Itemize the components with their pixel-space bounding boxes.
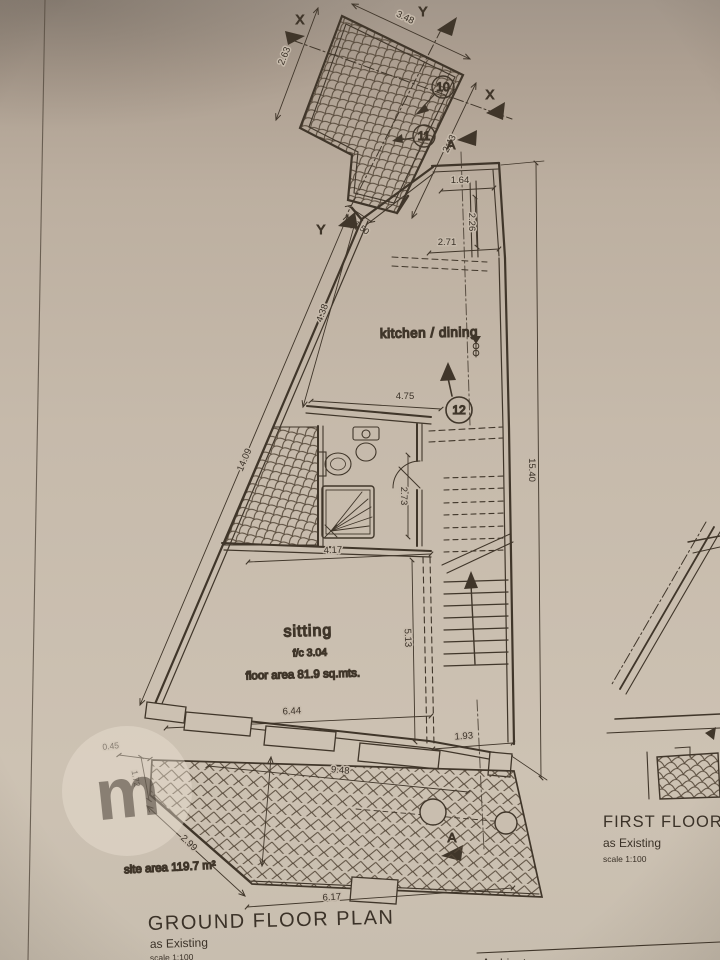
room-label-kitchen: kitchen / dining (380, 324, 478, 341)
dim-front-width: 9.48 (331, 764, 350, 777)
dim-right-total: 15.40 (526, 458, 537, 482)
first-floor-title: FIRST FLOOR (603, 813, 720, 831)
watermark: m (62, 726, 192, 856)
plan-canvas: 3.48 2.63 2.43 1.50 10 11 X X Y (0, 0, 720, 960)
section-y-label: Y (419, 4, 428, 19)
balcony-hatch (657, 753, 720, 799)
note-12-label: 12 (452, 403, 466, 417)
dim-terrace-width: 1.64 (451, 175, 470, 186)
ground-floor-scale: scale 1:100 (150, 952, 194, 960)
dim-stair-width: 1.93 (454, 730, 473, 742)
dim-terrace-height: 2.26 (466, 213, 477, 232)
section-x-label: X (296, 12, 305, 27)
floor-plan-scan: 3.48 2.63 2.43 1.50 10 11 X X Y (0, 0, 720, 960)
dim-sitting-width: 6.44 (282, 706, 301, 718)
first-floor-subtitle: as Existing (603, 836, 661, 850)
yard-column (495, 812, 517, 834)
note-10-label: 10 (436, 80, 450, 94)
ground-floor-subtitle: as Existing (150, 935, 208, 951)
yard-column (420, 799, 446, 825)
dim-kitchen-top: 2.71 (438, 237, 457, 248)
corner-box-label: Ambjent (482, 956, 527, 960)
yard-planter (350, 877, 398, 904)
sitting-ceiling-label: f/c 3.04 (293, 647, 328, 660)
first-floor-scale: scale 1:100 (603, 854, 647, 864)
watermark-letter: m (91, 750, 163, 836)
section-y-label: Y (317, 222, 326, 237)
dim-sitting-height: 5.13 (402, 628, 414, 647)
dim-kitchen-bottom: 4.75 (396, 391, 415, 402)
section-a-label: A (447, 137, 456, 152)
room-label-sitting: sitting (283, 622, 332, 640)
note-11-label: 11 (418, 129, 431, 143)
dim-bath-width: 4.17 (323, 545, 342, 557)
dim-bath-height: 2.73 (398, 487, 409, 506)
dim-yard-bottom: 6.17 (322, 891, 341, 903)
section-x-label: X (486, 87, 495, 102)
